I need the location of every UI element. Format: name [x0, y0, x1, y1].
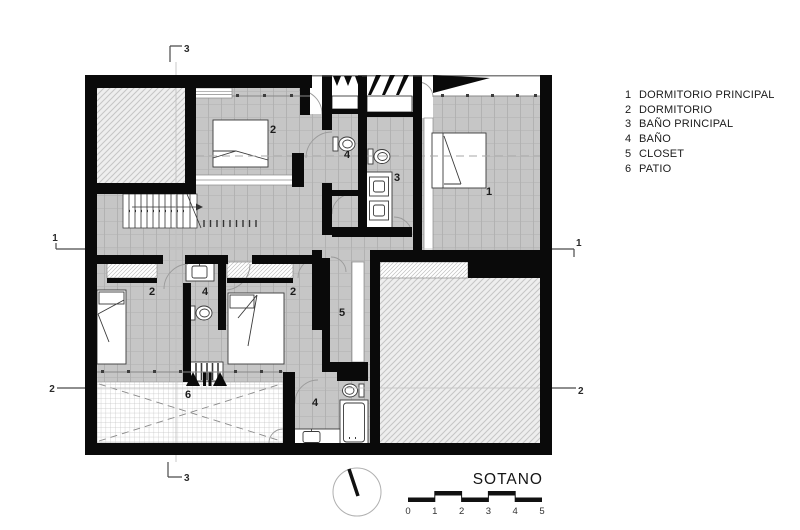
room-legend: 1 DORMITORIO PRINCIPAL 2 DORMITORIO 3 BA…	[625, 88, 775, 176]
bed-icon-bedroom-lower-right	[228, 293, 284, 364]
wall	[322, 183, 332, 235]
wall	[337, 372, 368, 381]
wall	[85, 75, 97, 455]
room-label-dormitorio-top: 2	[270, 124, 276, 136]
bed-icon-room2-top	[213, 120, 268, 167]
section-marker-2-right: 2	[578, 386, 584, 397]
door-gap-top	[310, 88, 322, 114]
legend-label: PATIO	[639, 162, 671, 177]
closet-strip-big-room	[380, 262, 468, 278]
wall	[107, 278, 157, 283]
wall	[85, 443, 552, 455]
wall	[413, 75, 422, 113]
toilet-icon-bano-lower-middle	[190, 306, 212, 320]
room-label-dormitorio-lower-right: 2	[290, 286, 296, 298]
wall	[218, 255, 226, 330]
legend-num: 6	[625, 162, 634, 177]
sink-icon-bano-lower-middle	[186, 262, 214, 281]
wall	[322, 75, 332, 130]
wall	[300, 75, 310, 115]
wall	[322, 362, 368, 372]
legend-label: CLOSET	[639, 147, 684, 162]
wall	[85, 75, 312, 88]
room-label-bano-top: 4	[344, 149, 351, 161]
wall	[413, 113, 422, 253]
plan-title: SOTANO	[473, 471, 543, 488]
wall	[85, 183, 196, 194]
closet-shelf-room2-top	[192, 88, 232, 98]
legend-label: BAÑO PRINCIPAL	[639, 117, 733, 132]
wall	[185, 87, 196, 194]
room-label-bano-bottom: 4	[312, 397, 319, 409]
closet-strip-closet5	[352, 262, 364, 362]
floor-plan-drawing: 2 4 3 1 2 4 2 5 6 4 1 1 2 2 3 3 SOTANO	[0, 0, 800, 530]
room-label-patio: 6	[185, 389, 191, 401]
section-marker-2-left: 2	[49, 384, 55, 395]
north-arrow-icon	[333, 468, 381, 516]
architectural-drawing-page: 2 4 3 1 2 4 2 5 6 4 1 1 2 2 3 3 SOTANO	[0, 0, 800, 530]
wall	[312, 250, 322, 330]
scale-tick-4: 4	[513, 506, 518, 517]
wall	[252, 255, 312, 264]
toilet-icon-bano-bottom	[343, 384, 365, 397]
legend-item-bano: 4 BAÑO	[625, 132, 775, 147]
legend-item-bano-principal: 3 BAÑO PRINCIPAL	[625, 117, 775, 132]
wall	[468, 262, 540, 278]
legend-label: DORMITORIO	[639, 103, 712, 118]
bathtub-icon-bano-bottom	[340, 400, 368, 445]
room-label-dormitorio-principal: 1	[486, 186, 492, 198]
scale-tick-5: 5	[539, 506, 544, 517]
wall	[183, 283, 191, 382]
shower-nook-bano-top	[332, 96, 358, 109]
wall	[367, 112, 413, 117]
section-marker-1-left: 1	[52, 233, 58, 244]
wall	[227, 278, 293, 283]
wall	[322, 258, 330, 368]
room-label-closet: 5	[339, 307, 345, 319]
wall	[370, 250, 380, 455]
double-sink-icon-bano-principal	[366, 172, 392, 228]
sink-icon-bano-bottom	[294, 429, 340, 444]
legend-item-patio: 6 PATIO	[625, 162, 775, 177]
legend-item-dormitorio: 2 DORMITORIO	[625, 103, 775, 118]
legend-num: 4	[625, 132, 634, 147]
legend-label: DORMITORIO PRINCIPAL	[639, 88, 775, 103]
section-marker-3-bottom: 3	[184, 473, 190, 484]
room-label-dormitorio-lower-left: 2	[149, 286, 155, 298]
patio-stair-bar	[209, 372, 212, 386]
legend-item-closet: 5 CLOSET	[625, 147, 775, 162]
wall	[332, 190, 358, 196]
section-marker-3-top: 3	[184, 44, 190, 55]
room-label-bano-principal: 3	[394, 172, 400, 184]
wall	[540, 75, 552, 455]
bed-icon-bedroom-lower-left	[97, 290, 126, 364]
door-gap-room1	[422, 96, 433, 118]
wall	[332, 227, 412, 237]
scale-tick-1: 1	[432, 506, 437, 517]
wall	[332, 109, 358, 114]
wall	[292, 153, 304, 187]
section-marker-1-right: 1	[576, 238, 582, 249]
legend-num: 2	[625, 103, 634, 118]
patio-stair-bar	[203, 372, 206, 386]
room-label-bano-lower-middle: 4	[202, 286, 209, 298]
legend-item-dormitorio-principal: 1 DORMITORIO PRINCIPAL	[625, 88, 775, 103]
wall	[358, 113, 367, 227]
scale-tick-0: 0	[405, 506, 410, 517]
legend-label: BAÑO	[639, 132, 671, 147]
hatched-room-top-left	[97, 87, 185, 183]
shelf-nook-bano-principal	[367, 96, 412, 112]
legend-num: 3	[625, 117, 634, 132]
wall	[85, 255, 163, 264]
scale-bar: 0 1 2 3 4 5	[405, 491, 544, 517]
closet-strip-bedroom-right	[227, 262, 293, 278]
scale-tick-2: 2	[459, 506, 464, 517]
scale-tick-3: 3	[486, 506, 491, 517]
hatched-room-bottom-right	[380, 278, 540, 443]
legend-num: 5	[625, 147, 634, 162]
bed-icon-room1	[432, 133, 486, 188]
wall	[370, 250, 552, 262]
legend-num: 1	[625, 88, 634, 103]
wall	[283, 372, 295, 450]
closet-strip-bedroom-left	[107, 262, 157, 278]
